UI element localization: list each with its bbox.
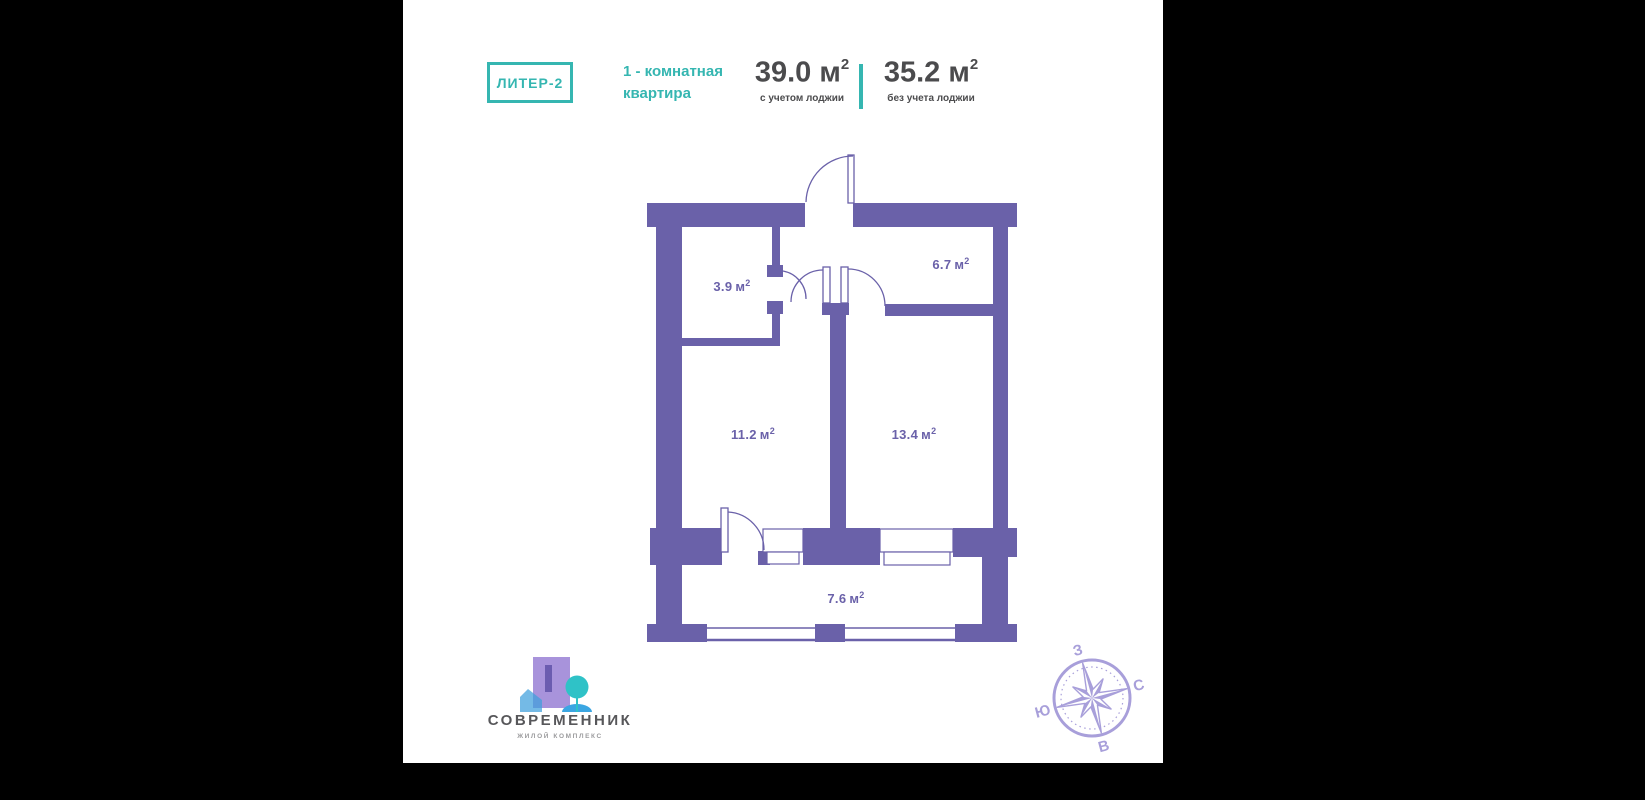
kitchen-door-swing [791,270,823,302]
compass-west-label: З [1071,641,1084,660]
loggia-pier-left [647,624,707,642]
area-without-unit: м [948,57,969,89]
bathroom-door-jamb-bottom [767,301,783,314]
wall-top-right [853,203,1017,227]
area-without-loggia-caption: без учета лоджии [875,93,987,104]
wall-central [830,315,846,528]
area-without-loggia: 35.2 м2 без учета лоджии [875,50,987,104]
liter-badge: ЛИТЕР-2 [487,62,573,103]
logo-tree-icon [566,676,589,699]
apartment-title: 1 - комнатная квартира [623,61,723,105]
wall-central-cap [822,303,849,315]
wall-south-mid [803,528,880,565]
compass-north-label: С [1131,676,1146,695]
hallway-area-label: 6.7м2 [932,256,969,272]
loggia-pier-mid [815,624,845,642]
liter-badge-label: ЛИТЕР-2 [497,75,564,91]
developer-logo-text: СОВРЕМЕННИК ЖИЛОЙ КОМПЛЕКС [475,712,645,740]
entrance-door-swing [806,156,853,202]
developer-logo-icon [500,640,620,714]
wall-loggia-right [982,555,1008,625]
logo-building-window-icon [545,665,552,692]
header-divider [859,64,863,109]
area-with-number: 39.0 [755,57,811,89]
area-without-number: 35.2 [884,57,940,89]
kitchen-window [763,529,803,552]
compass-east-label: В [1096,737,1111,756]
loggia-pier-right [955,624,1017,642]
wall-top-left [647,203,805,227]
living-room-window-sill [884,552,950,565]
screenshot-stage: ЛИТЕР-2 1 - комнатная квартира 39.0 м2 с… [0,0,1645,800]
developer-name: СОВРЕМЕННИК [475,712,645,729]
area-with-loggia-value: 39.0 м2 [746,50,858,90]
living-room-window [880,529,953,552]
floor-plan: 3.9м2 6.7м2 11.2м2 13.4м2 7.6м2 [640,148,1020,652]
area-with-loggia-caption: с учетом лоджии [746,93,858,104]
kitchen-area-label: 11.2м2 [731,426,775,442]
compass-south-label: Ю [1033,701,1052,721]
apartment-title-line1: 1 - комнатная [623,61,723,83]
apartment-title-line2: квартира [623,83,723,105]
balcony-door-leaf [721,508,728,552]
wall-bathroom-right-upper [772,227,780,266]
entrance-door-leaf [848,155,854,203]
kitchen-window-sill [767,552,799,564]
area-without-sup: 2 [970,56,978,73]
area-with-sup: 2 [841,56,849,73]
area-with-loggia: 39.0 м2 с учетом лоджии [746,50,858,104]
loggia-area-label: 7.6м2 [827,590,864,606]
wall-left [656,227,682,642]
bathroom-area-label: 3.9м2 [713,278,750,294]
developer-subtitle: ЖИЛОЙ КОМПЛЕКС [475,733,645,740]
compass-rose-icon: З С В Ю [1027,633,1157,763]
wall-hallway-bottom [885,304,993,316]
kitchen-door-leaf [823,267,830,303]
living-room-door-swing [848,269,885,306]
wall-south-left [650,528,722,565]
wall-south-right-corner [953,528,1017,557]
living-room-area-label: 13.4м2 [892,426,937,442]
flyer-canvas: ЛИТЕР-2 1 - комнатная квартира 39.0 м2 с… [403,0,1163,763]
wall-right [993,227,1008,530]
living-room-door-leaf [841,267,848,303]
area-with-unit: м [819,57,840,89]
bathroom-door-jamb-top [767,265,783,277]
area-without-loggia-value: 35.2 м2 [875,50,987,90]
bathroom-door-swing [783,271,806,299]
balcony-door-swing [728,512,764,550]
wall-bathroom-bottom [678,338,780,346]
